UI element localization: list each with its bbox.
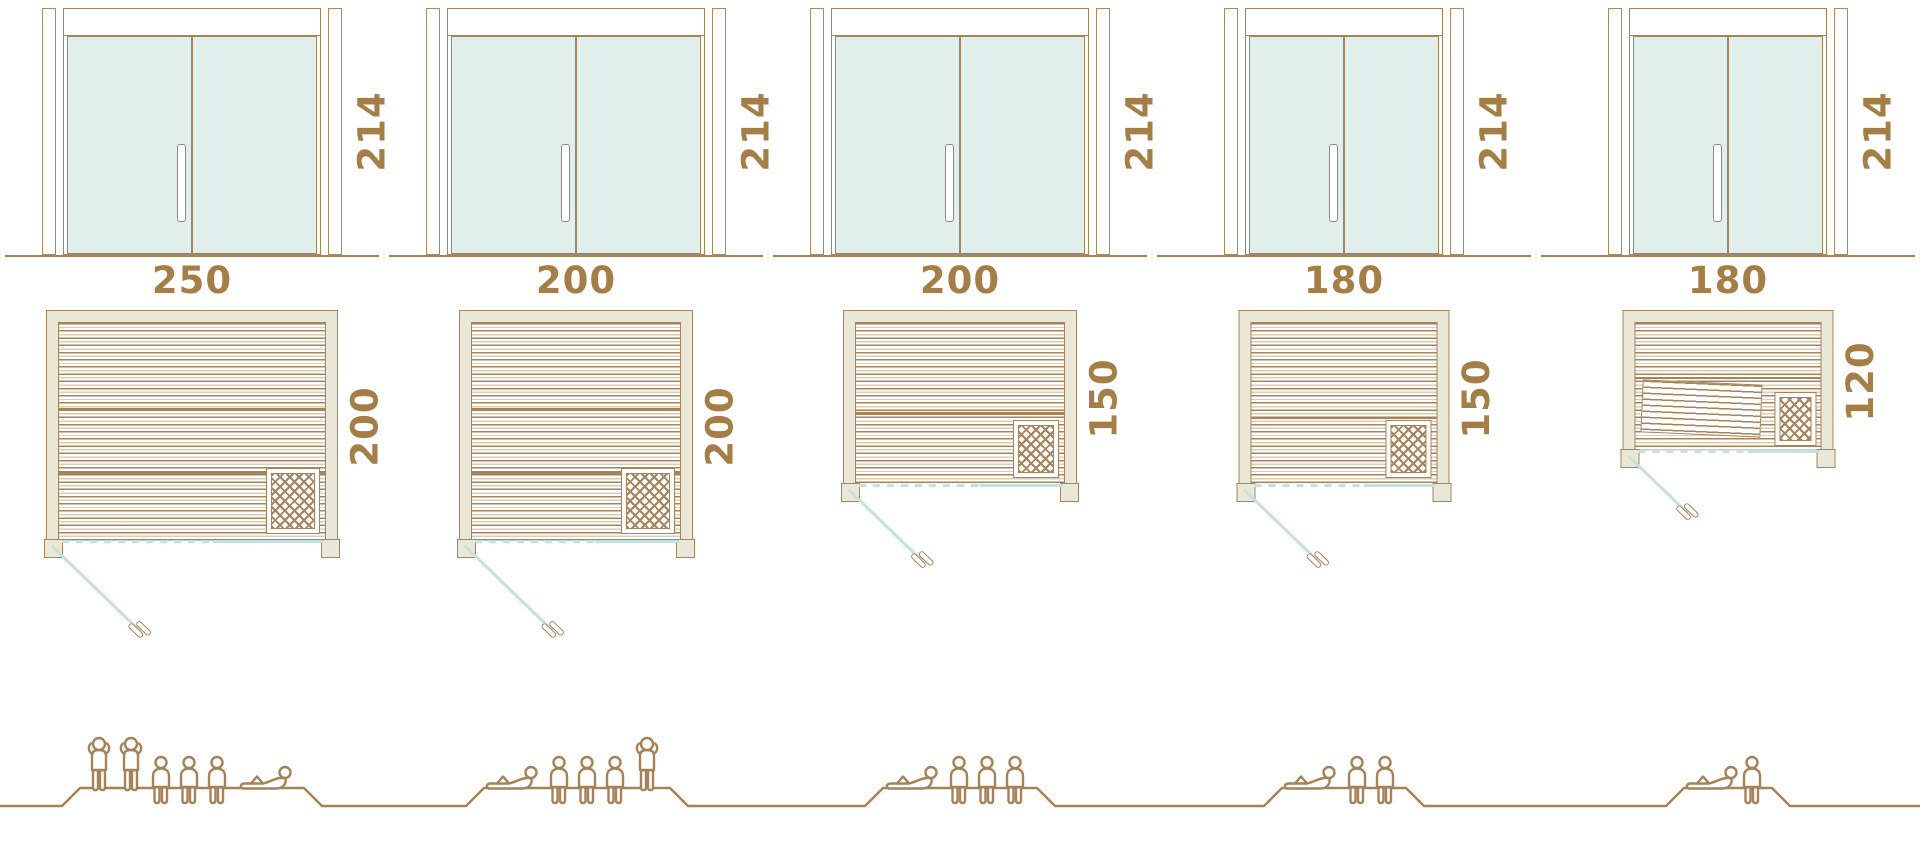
sauna-floor-plan: 150	[1239, 310, 1450, 485]
capacity-figures	[384, 736, 768, 832]
door-handle-icon	[1329, 144, 1338, 222]
person-seated-icon	[209, 757, 225, 803]
glass-front-dashed-line	[475, 540, 596, 543]
person-seated-icon	[607, 757, 623, 803]
door-header	[832, 9, 1088, 36]
plan-depth-dimension: 150	[1082, 311, 1126, 485]
sauna-heater-icon	[1386, 420, 1432, 478]
door-header	[1630, 9, 1826, 36]
door-ground-line	[389, 255, 763, 257]
plan-interior-benches	[855, 322, 1065, 485]
plan-interior-benches	[1635, 322, 1822, 451]
door-handle-top-view-icon	[1305, 549, 1331, 575]
door-height-dimension: 214	[1856, 8, 1900, 255]
door-glazing	[835, 36, 1085, 254]
open-door-swing-line	[848, 489, 923, 562]
door-right-post	[1450, 8, 1464, 255]
door-header	[448, 9, 704, 36]
door-ground-line	[773, 255, 1147, 257]
person-lying-icon	[1687, 767, 1737, 789]
door-handle-icon	[561, 144, 570, 222]
door-elevation: 214	[42, 8, 342, 255]
plan-interior-benches	[471, 322, 681, 541]
door-left-post	[42, 8, 56, 255]
glass-front-line	[596, 540, 679, 543]
bench-edge-line	[59, 408, 325, 411]
sauna-column-250x200: 214 250 200	[0, 0, 384, 843]
door-right-post	[712, 8, 726, 255]
capacity-figures	[1152, 736, 1536, 832]
capacity-figures	[768, 736, 1152, 832]
person-standing-icon	[89, 738, 109, 790]
person-seated-icon	[1744, 757, 1760, 803]
door-height-dimension: 214	[1472, 8, 1516, 255]
bench-edge-line	[1636, 377, 1821, 380]
person-seated-icon	[579, 757, 595, 803]
plan-width-dimension: 250	[0, 262, 384, 299]
door-left-post	[426, 8, 440, 255]
ground-profile-line	[1152, 788, 1536, 806]
open-door-swing-line	[1628, 455, 1689, 514]
bench-edge-line	[472, 408, 680, 411]
door-elevation: 214	[1224, 8, 1464, 255]
door-glazing	[1249, 36, 1439, 254]
door-glass-right-panel	[1728, 36, 1823, 254]
plan-depth-dimension: 120	[1839, 311, 1883, 451]
sauna-column-180x150: 214 180 150	[1152, 0, 1536, 843]
plan-depth-dimension: 200	[343, 311, 387, 541]
capacity-figures	[1536, 736, 1920, 832]
person-lying-icon	[1285, 767, 1335, 789]
person-seated-icon	[1349, 757, 1365, 803]
door-header	[64, 9, 320, 36]
sauna-size-diagram: 214 250 200	[0, 0, 1920, 843]
sauna-column-180x120: 214 180 120	[1536, 0, 1920, 843]
door-ground-line	[1541, 255, 1915, 257]
glass-front-line	[1363, 484, 1435, 487]
door-glass-right-panel	[576, 36, 701, 254]
door-elevation: 214	[810, 8, 1110, 255]
door-frame	[831, 8, 1089, 255]
heater-lattice	[626, 473, 670, 529]
door-left-post	[810, 8, 824, 255]
door-handle-top-view-icon	[910, 549, 936, 575]
door-glass-right-panel	[960, 36, 1085, 254]
person-seated-icon	[1007, 757, 1023, 803]
door-right-post	[328, 8, 342, 255]
door-glazing	[67, 36, 317, 254]
sauna-heater-icon	[1775, 392, 1817, 446]
heater-lattice	[1780, 397, 1812, 441]
door-glass-left-panel	[1249, 36, 1344, 254]
door-handle-icon	[177, 144, 186, 222]
door-left-post	[1608, 8, 1622, 255]
plan-interior-benches	[1251, 322, 1438, 485]
glass-front-line	[1747, 450, 1819, 453]
plan-interior-benches	[58, 322, 326, 541]
sauna-heater-icon	[266, 468, 320, 534]
door-glass-left-panel	[1633, 36, 1728, 254]
person-lying-icon	[241, 767, 291, 789]
door-right-post	[1096, 8, 1110, 255]
sauna-floor-plan: 120	[1623, 310, 1834, 451]
glass-front-dashed-line	[1639, 450, 1748, 453]
door-glass-right-panel	[192, 36, 317, 254]
plan-width-dimension: 180	[1152, 262, 1536, 299]
door-handle-top-view-icon	[1675, 501, 1701, 527]
door-glazing	[1633, 36, 1823, 254]
person-seated-icon	[181, 757, 197, 803]
sauna-floor-plan: 200	[46, 310, 338, 541]
door-handle-icon	[945, 144, 954, 222]
door-right-post	[1834, 8, 1848, 255]
glass-front-dashed-line	[1255, 484, 1364, 487]
door-glass-right-panel	[1344, 36, 1439, 254]
plan-width-dimension: 200	[384, 262, 768, 299]
sauna-column-200x150: 214 200 150	[768, 0, 1152, 843]
door-frame	[447, 8, 705, 255]
person-seated-icon	[1377, 757, 1393, 803]
person-lying-icon	[487, 767, 537, 789]
plan-depth-dimension: 200	[698, 311, 742, 541]
door-frame	[63, 8, 321, 255]
glass-front-line	[213, 540, 324, 543]
door-handle-icon	[1713, 144, 1722, 222]
ground-profile-line	[1536, 788, 1920, 806]
door-frame	[1245, 8, 1443, 255]
plan-width-dimension: 180	[1536, 262, 1920, 299]
door-ground-line	[1157, 255, 1531, 257]
door-left-post	[1224, 8, 1238, 255]
glass-front-line	[980, 484, 1063, 487]
tilted-bench	[1640, 379, 1763, 437]
capacity-figures	[0, 736, 384, 832]
door-elevation: 214	[1608, 8, 1848, 255]
door-header	[1246, 9, 1442, 36]
plan-width-dimension: 200	[768, 262, 1152, 299]
person-standing-icon	[121, 738, 141, 790]
glass-front-dashed-line	[859, 484, 980, 487]
glass-front-dashed-line	[62, 540, 213, 543]
door-frame	[1629, 8, 1827, 255]
door-handle-top-view-icon	[540, 618, 566, 644]
open-door-swing-line	[51, 545, 140, 632]
sauna-heater-icon	[621, 468, 675, 534]
door-glass-left-panel	[451, 36, 576, 254]
sauna-column-200x200: 214 200 200	[384, 0, 768, 843]
person-lying-icon	[887, 767, 937, 789]
door-elevation: 214	[426, 8, 726, 255]
door-ground-line	[5, 255, 379, 257]
sauna-heater-icon	[1013, 420, 1059, 478]
open-door-swing-line	[464, 545, 553, 632]
open-door-swing-line	[1244, 489, 1319, 562]
ground-profile-line	[384, 788, 768, 806]
heater-lattice	[1018, 425, 1054, 473]
sauna-floor-plan: 150	[843, 310, 1077, 485]
heater-lattice	[271, 473, 315, 529]
door-glass-left-panel	[67, 36, 192, 254]
person-seated-icon	[979, 757, 995, 803]
heater-lattice	[1391, 425, 1427, 473]
door-glass-left-panel	[835, 36, 960, 254]
door-glazing	[451, 36, 701, 254]
person-seated-icon	[153, 757, 169, 803]
door-handle-top-view-icon	[127, 618, 153, 644]
person-seated-icon	[951, 757, 967, 803]
person-seated-icon	[551, 757, 567, 803]
bench-edge-line	[856, 412, 1064, 415]
person-standing-icon	[637, 738, 657, 790]
sauna-floor-plan: 200	[459, 310, 693, 541]
plan-depth-dimension: 150	[1455, 311, 1499, 485]
